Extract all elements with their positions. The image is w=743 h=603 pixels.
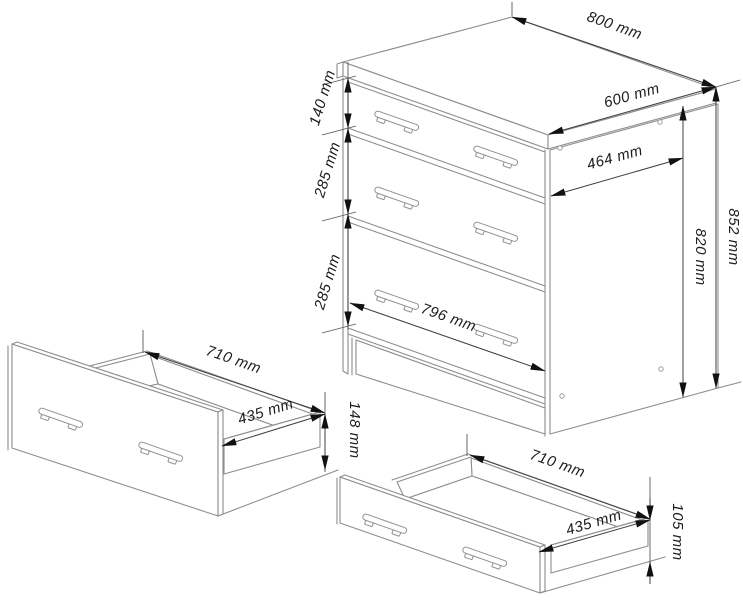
dim-label-drawer1-height: 140 mm xyxy=(306,68,339,128)
cabinet-drawing: 800 mm 600 mm 464 mm 852 mm 820 mm 140 m… xyxy=(306,2,742,436)
dim-label-left-drawer-height: 148 mm xyxy=(346,401,363,458)
side-panel-hole xyxy=(560,394,564,398)
side-panel-hole xyxy=(658,120,662,124)
left-drawer-bottom-reference-edge xyxy=(218,470,338,516)
dim-label-cabinet-top-width: 800 mm xyxy=(585,8,645,43)
dim-label-left-drawer-width: 710 mm xyxy=(204,342,264,377)
side-panel-hole xyxy=(558,146,562,150)
right-drawer-drawing: 710 mm 435 mm 105 mm xyxy=(337,434,686,593)
dim-label-drawer2-height: 285 mm xyxy=(311,140,344,201)
dim-label-cabinet-height-carcass: 820 mm xyxy=(692,228,709,285)
left-drawer-front-right-edge xyxy=(218,410,223,516)
dim-label-right-drawer-width: 710 mm xyxy=(528,446,588,481)
furniture-dimension-drawing: 800 mm 600 mm 464 mm 852 mm 820 mm 140 m… xyxy=(0,0,743,603)
right-drawer-front-right-edge xyxy=(540,545,545,593)
chain-tick xyxy=(322,126,356,135)
technical-drawing-canvas: 800 mm 600 mm 464 mm 852 mm 820 mm 140 m… xyxy=(0,0,743,603)
cabinet-left-bottom-edge xyxy=(343,371,348,374)
side-panel-hole xyxy=(659,367,663,371)
extension-line xyxy=(716,80,740,87)
dim-label-drawer3-height: 285 mm xyxy=(311,252,344,313)
dim-label-right-drawer-height: 105 mm xyxy=(669,503,686,560)
cabinet-floor-baseline xyxy=(718,382,741,388)
dim-label-cabinet-height-total: 852 mm xyxy=(725,208,742,265)
left-drawer-drawing: 710 mm 435 mm 148 mm xyxy=(8,330,363,516)
